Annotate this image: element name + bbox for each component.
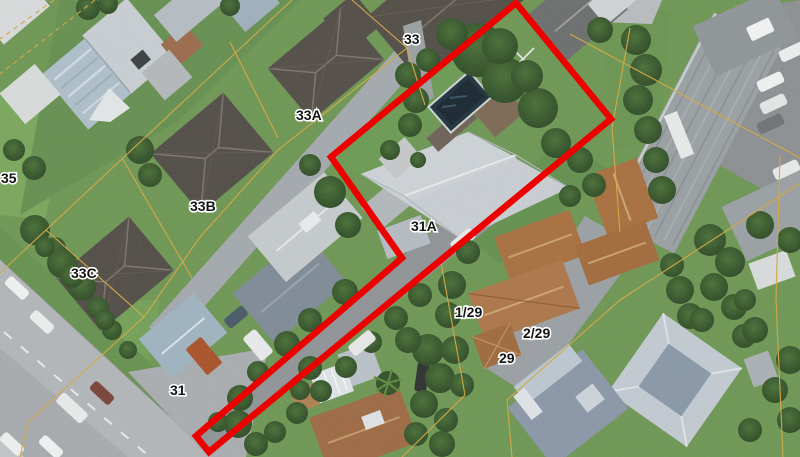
- svg-text:35: 35: [1, 170, 17, 186]
- svg-text:29: 29: [499, 350, 515, 366]
- svg-text:2/29: 2/29: [523, 325, 550, 341]
- svg-text:33A: 33A: [296, 107, 322, 123]
- svg-text:31A: 31A: [411, 218, 437, 234]
- svg-text:31: 31: [170, 382, 186, 398]
- svg-text:1/29: 1/29: [455, 304, 482, 320]
- svg-text:33: 33: [404, 31, 420, 47]
- svg-text:33B: 33B: [190, 198, 216, 214]
- svg-text:33C: 33C: [71, 265, 97, 281]
